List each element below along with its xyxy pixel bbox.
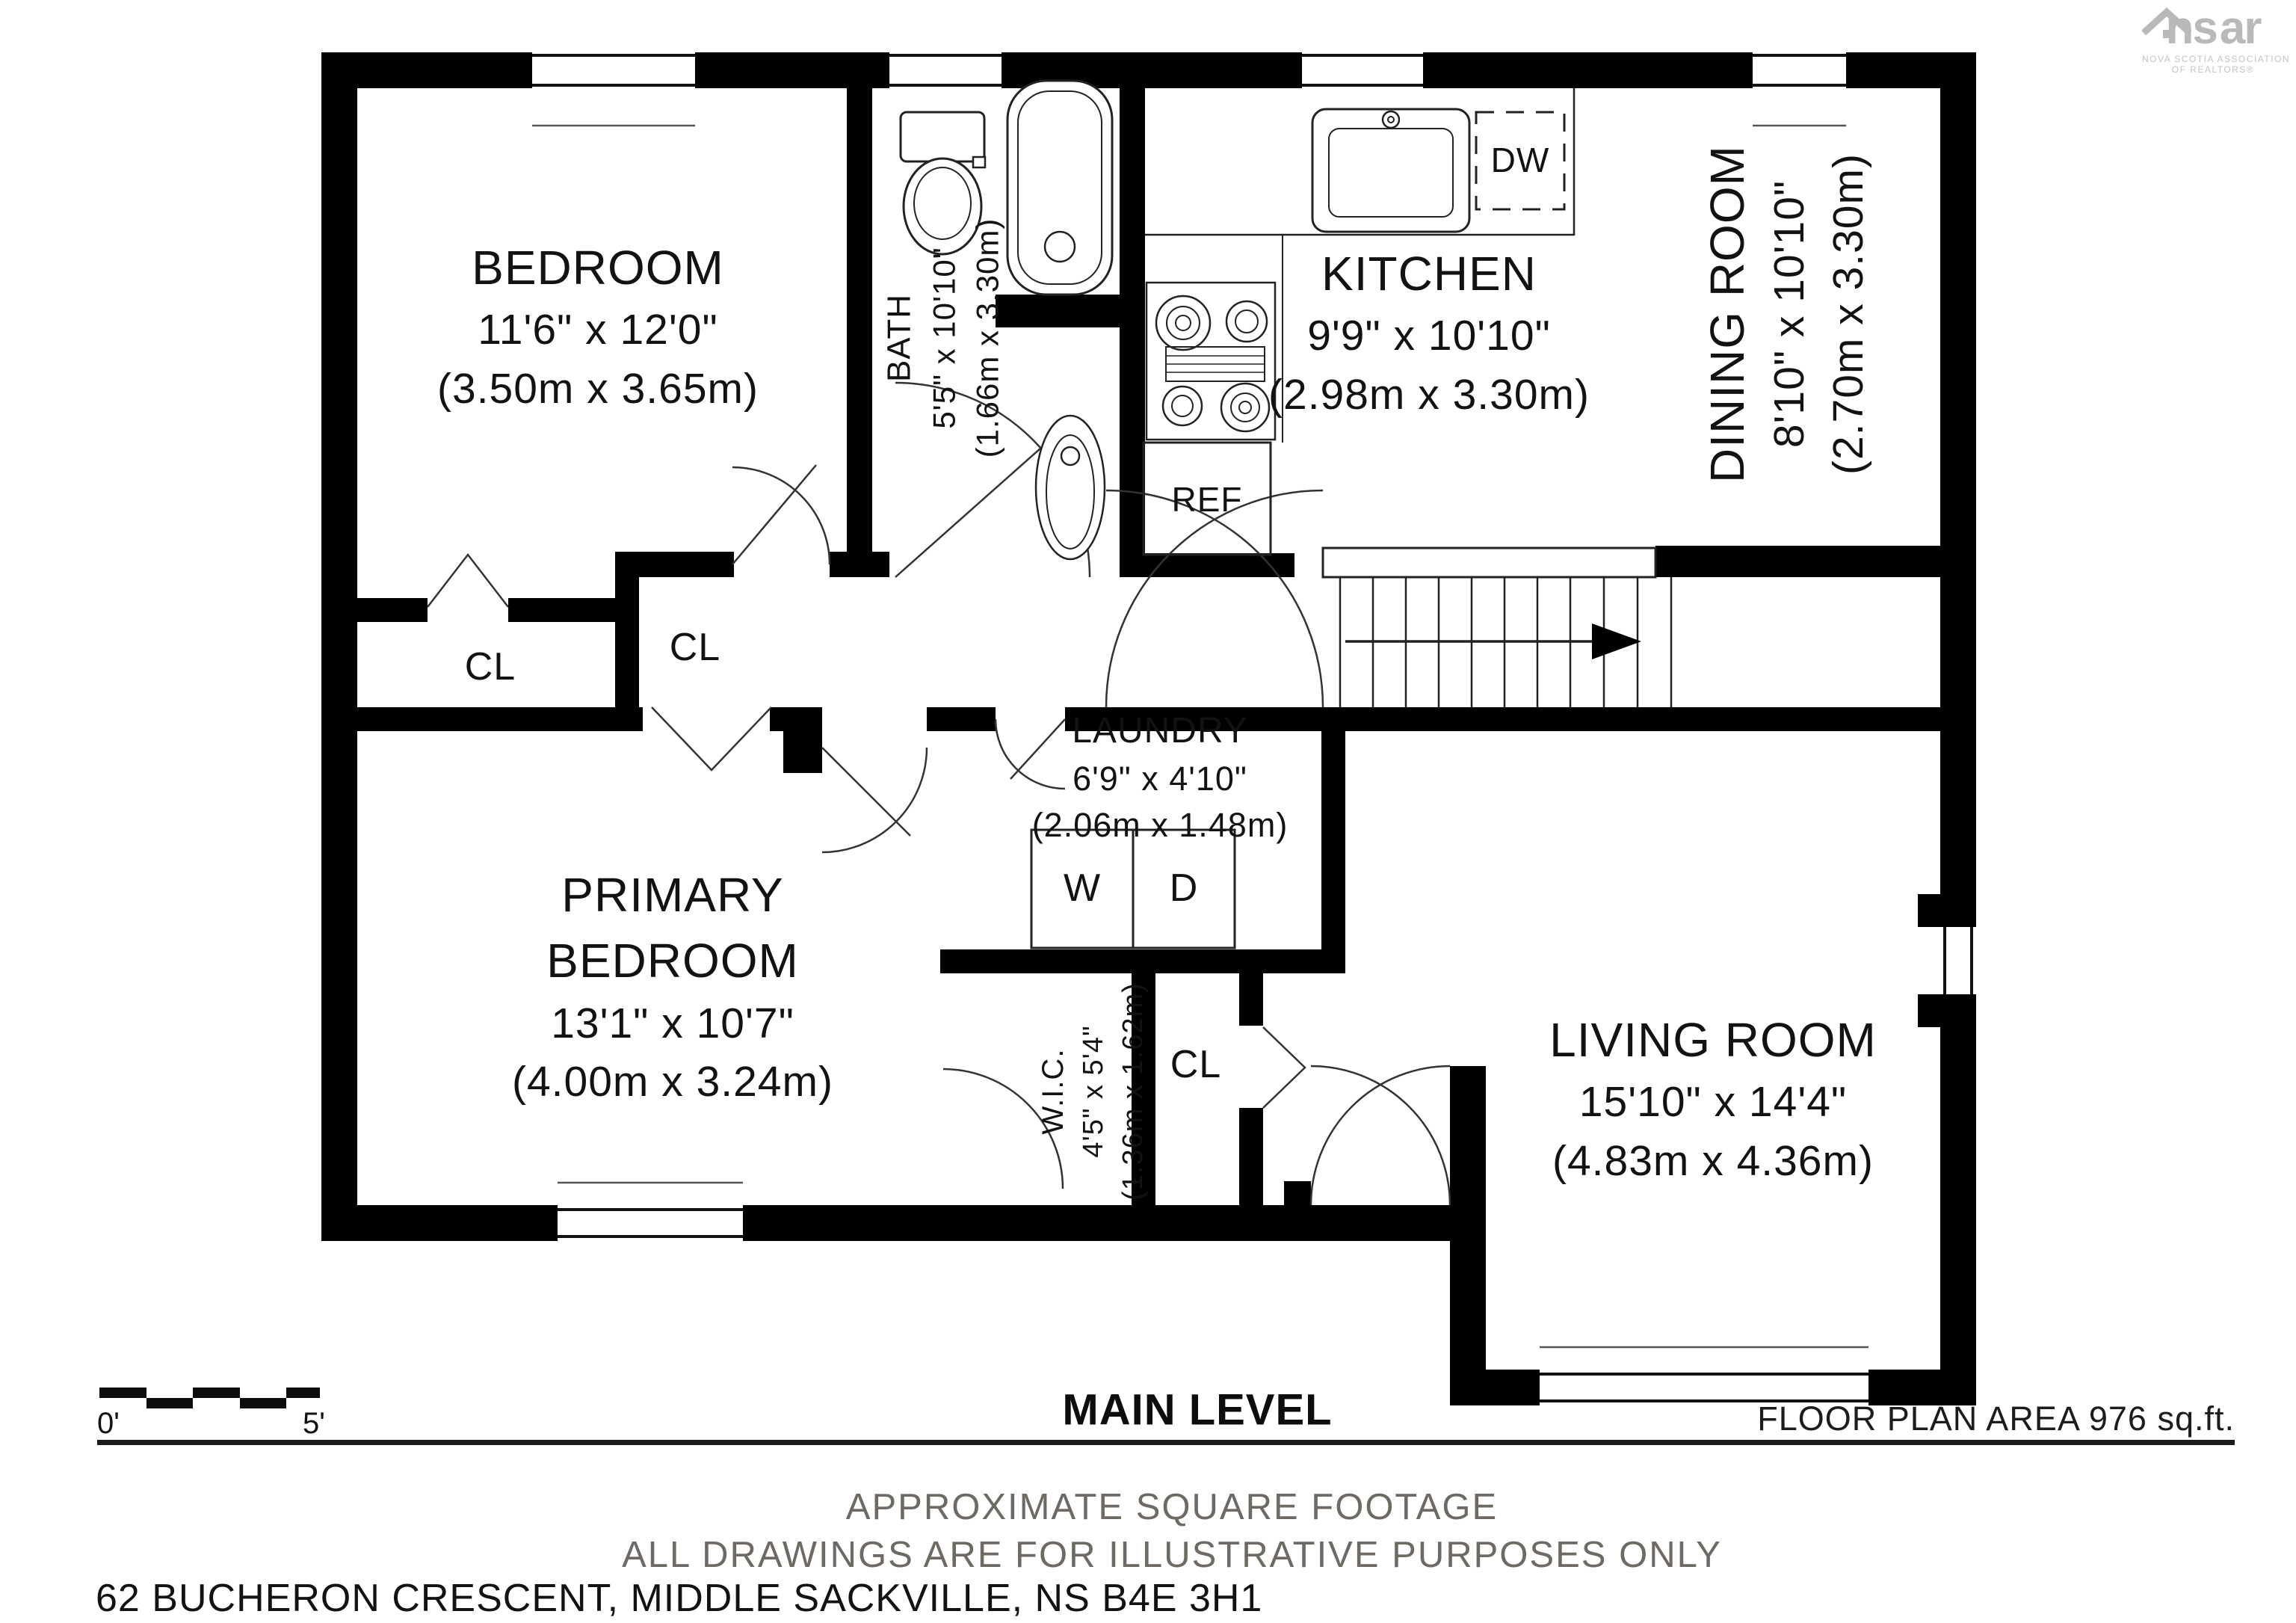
wall-dining-stairs [1655,546,1940,577]
wall-bath-kitchen [1120,88,1145,577]
room-label-laundry: LAUNDRY 6'9" x 4'10" (2.06m x 1.48m) [1032,706,1289,849]
room-dims-imperial: 6'9" x 4'10" [1032,756,1289,802]
room-dims-metric: (2.70m x 3.30m) [1819,145,1878,483]
wall-kitchen-bottom [1120,553,1294,577]
wall-lr-window-jamb-bottom [1918,994,1976,1027]
wall-lr-window-jamb-top [1918,894,1976,927]
window-living-room-right [1937,927,1979,994]
logo-subtitle-1: NOVA SCOTIA ASSOCIATION [2142,54,2284,64]
kitchen-sink [1312,109,1469,232]
wall-bottom-left [321,1205,1486,1241]
floor-plan-page: BEDROOM 11'6" x 12'0" (3.50m x 3.65m) BA… [0,0,2296,1623]
wall-closet-divider [615,622,639,707]
scale-end-label: 5' [303,1407,325,1441]
wall-closet-top-left [357,598,428,622]
room-dims-imperial: 9'9" x 10'10" [1268,307,1590,366]
wall-laundry-right [1321,731,1345,949]
room-label-dining-room: DINING ROOM 8'10" x 10'10" (2.70m x 3.30… [1694,145,1878,483]
room-dims-imperial: 8'10" x 10'10" [1761,145,1820,483]
window-bedroom [532,49,695,126]
stove [1147,283,1275,440]
wall-hall-3 [927,707,996,731]
wall-closet3-lower [1239,1108,1263,1205]
room-label-primary-bedroom: PRIMARY BEDROOM 13'1" x 10'7" (4.00m x 3… [456,862,889,1112]
window-primary-bedroom [558,1183,743,1244]
dryer-label: D [1170,866,1199,911]
room-name: PRIMARY BEDROOM [456,862,889,994]
door-living-room [1311,1066,1450,1205]
room-dims-metric: (1.66m x 3.30m) [966,218,1009,458]
room-dims-metric: (4.00m x 3.24m) [456,1053,889,1112]
door-bedroom-closet-bifold [428,555,508,607]
wall-under-tub [996,295,1120,327]
wall-closet-top-right [508,598,639,622]
room-dims-metric: (1.36m x 1.62m) [1114,982,1152,1201]
room-name: DINING ROOM [1694,145,1760,483]
floor-area-note: FLOOR PLAN AREA 976 sq.ft. [1757,1399,2235,1438]
room-name: LIVING ROOM [1549,1007,1877,1073]
dishwasher-label: DW [1491,140,1550,180]
nsar-logo: ns ar NOVA SCOTIA ASSOCIATION OF REALTOR… [2142,7,2284,75]
window-kitchen [1302,49,1423,91]
wall-hall-2 [770,707,822,731]
room-dims-imperial: 5'5" x 10'10" [922,218,966,458]
logo-text-ar: ar [2220,7,2261,49]
bathtub [1007,81,1112,295]
room-name: W.I.C. [1033,982,1074,1201]
property-address: 62 BUCHERON CRESCENT, MIDDLE SACKVILLE, … [96,1576,1262,1621]
wall-primary-door-jamb [783,731,822,773]
door-primary-bedroom [822,748,927,852]
room-dims-imperial: 11'6" x 12'0" [437,301,759,360]
room-dims-imperial: 4'5" x 5'4" [1074,982,1113,1201]
stairs [1323,548,1671,707]
wall-closet3-upper [1239,973,1263,1026]
wall-bedroom-bath [847,88,872,552]
room-name: LAUNDRY [1032,706,1289,756]
divider-rule [97,1440,2235,1445]
wall-left [321,88,357,1205]
stair-landing [1323,548,1655,577]
logo-subtitle-2: OF REALTORS® [2142,64,2284,75]
room-label-kitchen: KITCHEN 9'9" x 10'10" (2.98m x 3.30m) [1268,241,1590,425]
room-name: BEDROOM [437,235,759,301]
closet-label-3: CL [1170,1042,1221,1087]
scale-bar [99,1388,320,1408]
door-closet-hall-bifold [1263,1027,1305,1108]
wall-hall-1 [357,707,643,731]
room-name: KITCHEN [1268,241,1590,307]
door-bedroom [732,465,830,564]
closet-label-2: CL [670,625,720,670]
bath-sink [1036,416,1105,559]
wall-entry-jamb [1284,1181,1311,1205]
window-dining [1753,49,1846,126]
room-name: BATH [877,218,923,458]
room-dims-metric: (2.98m x 3.30m) [1268,366,1590,425]
room-label-bath: BATH 5'5" x 10'10" (1.66m x 3.30m) [877,218,1010,458]
room-dims-imperial: 13'1" x 10'7" [456,994,889,1053]
wall-right [1940,88,1976,1405]
closet-label-1: CL [465,644,516,689]
room-dims-metric: (3.50m x 3.65m) [437,360,759,419]
stair-direction-arrow [1345,623,1641,659]
wall-livingroom-left [1450,1066,1486,1405]
floor-title: MAIN LEVEL [1062,1385,1332,1435]
wall-jamb-bath [830,552,889,577]
room-label-living-room: LIVING ROOM 15'10" x 14'4" (4.83m x 4.36… [1549,1007,1877,1191]
footnote-illustrative: ALL DRAWINGS ARE FOR ILLUSTRATIVE PURPOS… [622,1534,1722,1576]
scale-start-label: 0' [97,1407,120,1441]
room-dims-metric: (4.83m x 4.36m) [1549,1132,1877,1191]
room-label-bedroom: BEDROOM 11'6" x 12'0" (3.50m x 3.65m) [437,235,759,419]
washer-label: W [1064,866,1101,911]
room-dims-imperial: 15'10" x 14'4" [1549,1074,1877,1133]
door-closet2-bifold [652,707,771,770]
window-bath [889,49,1002,91]
wall-laundry-bottom [940,949,1345,973]
footnote-square-footage: APPROXIMATE SQUARE FOOTAGE [846,1486,1498,1528]
refrigerator-label: REF [1172,479,1243,520]
room-dims-metric: (2.06m x 1.48m) [1032,802,1289,849]
room-label-wic: W.I.C. 4'5" x 5'4" (1.36m x 1.62m) [1033,982,1152,1201]
